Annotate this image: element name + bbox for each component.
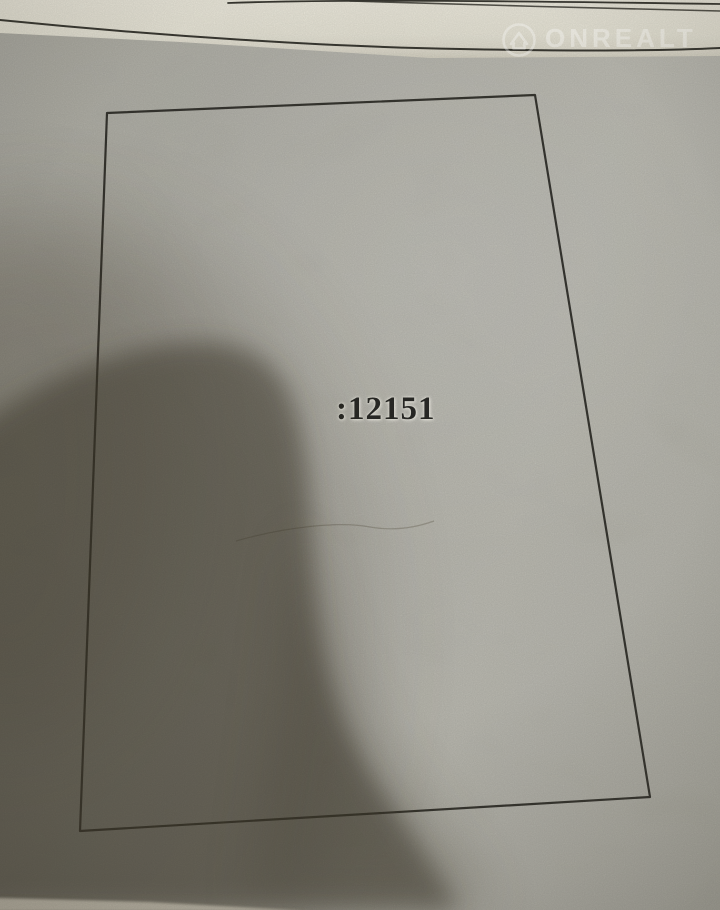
paper-grain bbox=[0, 0, 720, 910]
watermark-brand-text: ONREALT bbox=[545, 23, 697, 53]
plan-overlay: ONREALT bbox=[0, 0, 720, 910]
cadastral-plan-photo: :12151 bbox=[0, 0, 720, 910]
